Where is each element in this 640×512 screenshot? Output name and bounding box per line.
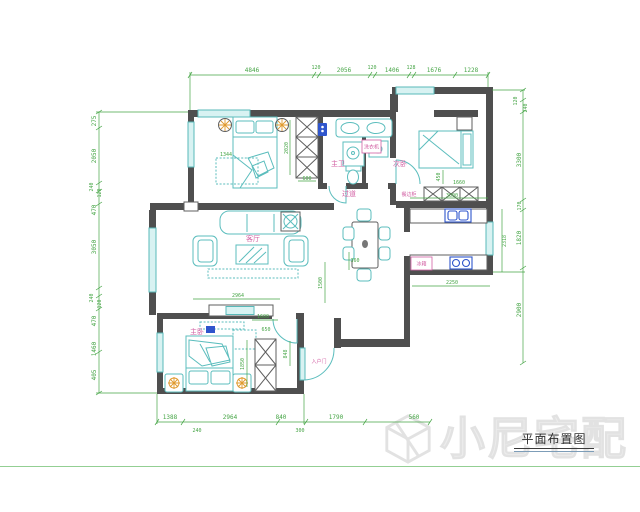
bedroom-door-arc xyxy=(273,319,297,343)
dimension-texts-bottom: 1388 2964 840 1790 560 240 300 xyxy=(163,414,420,434)
rug-strip xyxy=(208,269,298,278)
dim-text: 600 xyxy=(302,176,311,182)
dim-text: 470 xyxy=(91,315,98,326)
tv xyxy=(226,307,254,315)
living-room xyxy=(193,211,308,316)
dim-text: 120 xyxy=(311,65,320,71)
wall-lamp-icon xyxy=(219,119,232,132)
entry-door-label: 入户门 xyxy=(311,358,326,365)
dining-area xyxy=(343,209,390,281)
dim-text: 120 xyxy=(97,188,103,197)
dim-text: 1460 xyxy=(91,341,98,356)
ac-unit-icon xyxy=(206,326,215,333)
dim-text: 1676 xyxy=(427,67,442,74)
dimension-texts-left: 275 2050 240 120 470 3050 240 120 470 14… xyxy=(89,115,103,380)
title-block: 平面布置图 xyxy=(514,430,594,452)
dim-text: 1850 xyxy=(240,358,246,370)
dim-text: 2050 xyxy=(91,148,98,163)
dim-text: 1500 xyxy=(318,277,324,289)
dim-text: 4846 xyxy=(245,67,260,74)
dim-text: 3050 xyxy=(91,239,98,254)
fridge-label: 冰箱 xyxy=(416,261,426,268)
dim-text: 2964 xyxy=(232,293,244,299)
dim-text: 2056 xyxy=(337,67,352,74)
dim-text: 1406 xyxy=(385,67,400,74)
dim-text: 240 xyxy=(89,182,95,191)
water-heater-icon xyxy=(318,123,327,136)
bed xyxy=(233,117,277,188)
toilet-bowl xyxy=(348,170,359,184)
room-label-sideboard: 餐边柜 xyxy=(401,191,416,198)
entry-door-leaf xyxy=(300,348,305,380)
dim-text: 840 xyxy=(276,414,287,421)
dim-text: 3000 xyxy=(446,193,458,199)
dim-text: 2318 xyxy=(502,235,508,247)
title-underline-thin xyxy=(514,451,594,452)
dim-text: 240 xyxy=(523,103,529,112)
washing-machine-label: 洗衣机 xyxy=(364,144,379,151)
dim-text: 560 xyxy=(409,414,420,421)
dim-text: 1820 xyxy=(516,230,523,245)
dim-text: 2020 xyxy=(284,142,290,154)
room-label-master-bath: 主卫 xyxy=(331,159,345,168)
dim-text: 2964 xyxy=(223,414,238,421)
dim-text: 2900 xyxy=(516,302,523,317)
dim-text: 848 xyxy=(283,349,289,358)
dim-text: 1228 xyxy=(464,67,479,74)
dim-text: 120 xyxy=(367,65,376,71)
wardrobe xyxy=(296,117,318,178)
room-label-second-bedroom: 次卧 xyxy=(393,159,407,168)
dim-text: 275 xyxy=(91,115,98,126)
dim-text: 450 xyxy=(436,172,442,181)
dim-text: 405 xyxy=(91,369,98,380)
dim-text: 128 xyxy=(406,65,415,71)
dim-text: 360 xyxy=(350,258,359,264)
dim-text: 1344 xyxy=(220,152,232,158)
dimension-texts-right: 120 240 3300 170 1820 2900 xyxy=(513,96,529,317)
dim-text: 3300 xyxy=(516,152,523,167)
bathroom: 洗衣机 xyxy=(318,119,392,184)
dim-text: 650 xyxy=(261,327,270,333)
dim-text: 1790 xyxy=(329,414,344,421)
bed xyxy=(419,131,473,168)
wall-lamp-icon xyxy=(276,119,289,132)
nightstand-lamp-icon xyxy=(233,374,251,392)
kitchen: 冰箱 xyxy=(410,209,487,270)
wardrobe xyxy=(255,339,276,391)
drawing-title: 平面布置图 xyxy=(514,430,594,447)
dim-text: 2250 xyxy=(446,280,458,286)
dim-text: 120 xyxy=(513,96,519,105)
dim-text: 170 xyxy=(517,201,523,210)
dim-text: 240 xyxy=(192,428,201,434)
dim-text: 1388 xyxy=(163,414,178,421)
room-label-living: 客厅 xyxy=(246,234,260,243)
nightstand-lamp-icon xyxy=(165,374,183,392)
dim-text: 1600 xyxy=(257,314,269,320)
floor-plan-page: 小尼宅配 xyxy=(0,0,640,512)
dim-text: 240 xyxy=(89,293,95,302)
frame-line xyxy=(0,466,640,467)
room-label-hallway: 过道 xyxy=(342,189,356,198)
dim-text: 120 xyxy=(97,299,103,308)
dim-text: 470 xyxy=(91,204,98,215)
dim-text: 1660 xyxy=(453,180,465,186)
room-label-master-bedroom: 主卧 xyxy=(190,327,204,336)
title-underline xyxy=(514,448,594,449)
vanity xyxy=(336,119,392,137)
dimension-texts-top: 4846 120 2056 120 1406 128 1676 1228 xyxy=(245,65,479,74)
dim-text: 300 xyxy=(295,428,304,434)
bedroom-bottom-left xyxy=(165,322,276,392)
bedroom-top-right xyxy=(419,131,478,201)
